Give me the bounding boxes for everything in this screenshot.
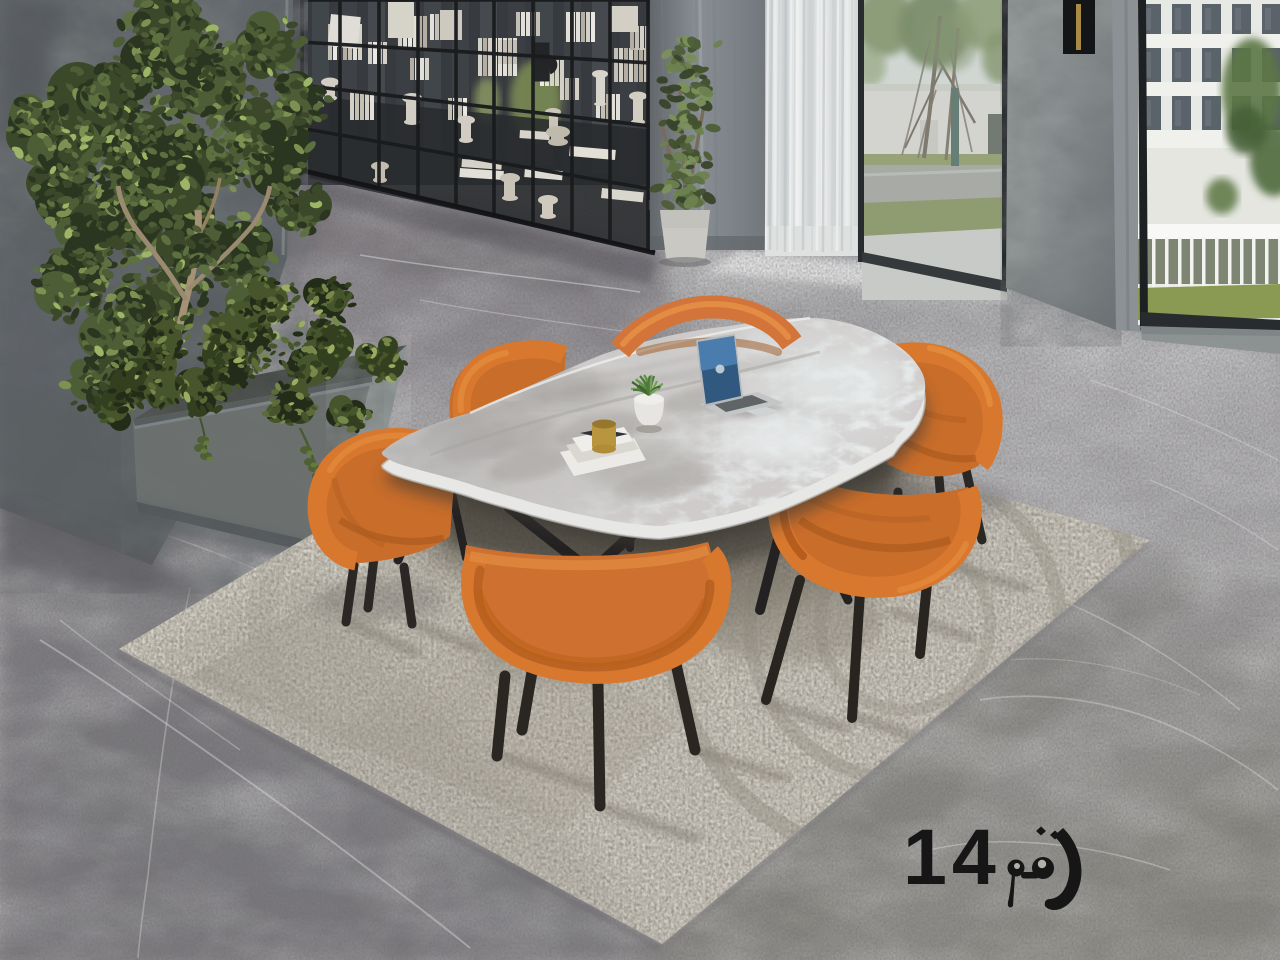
svg-text:14: 14	[903, 812, 1001, 901]
